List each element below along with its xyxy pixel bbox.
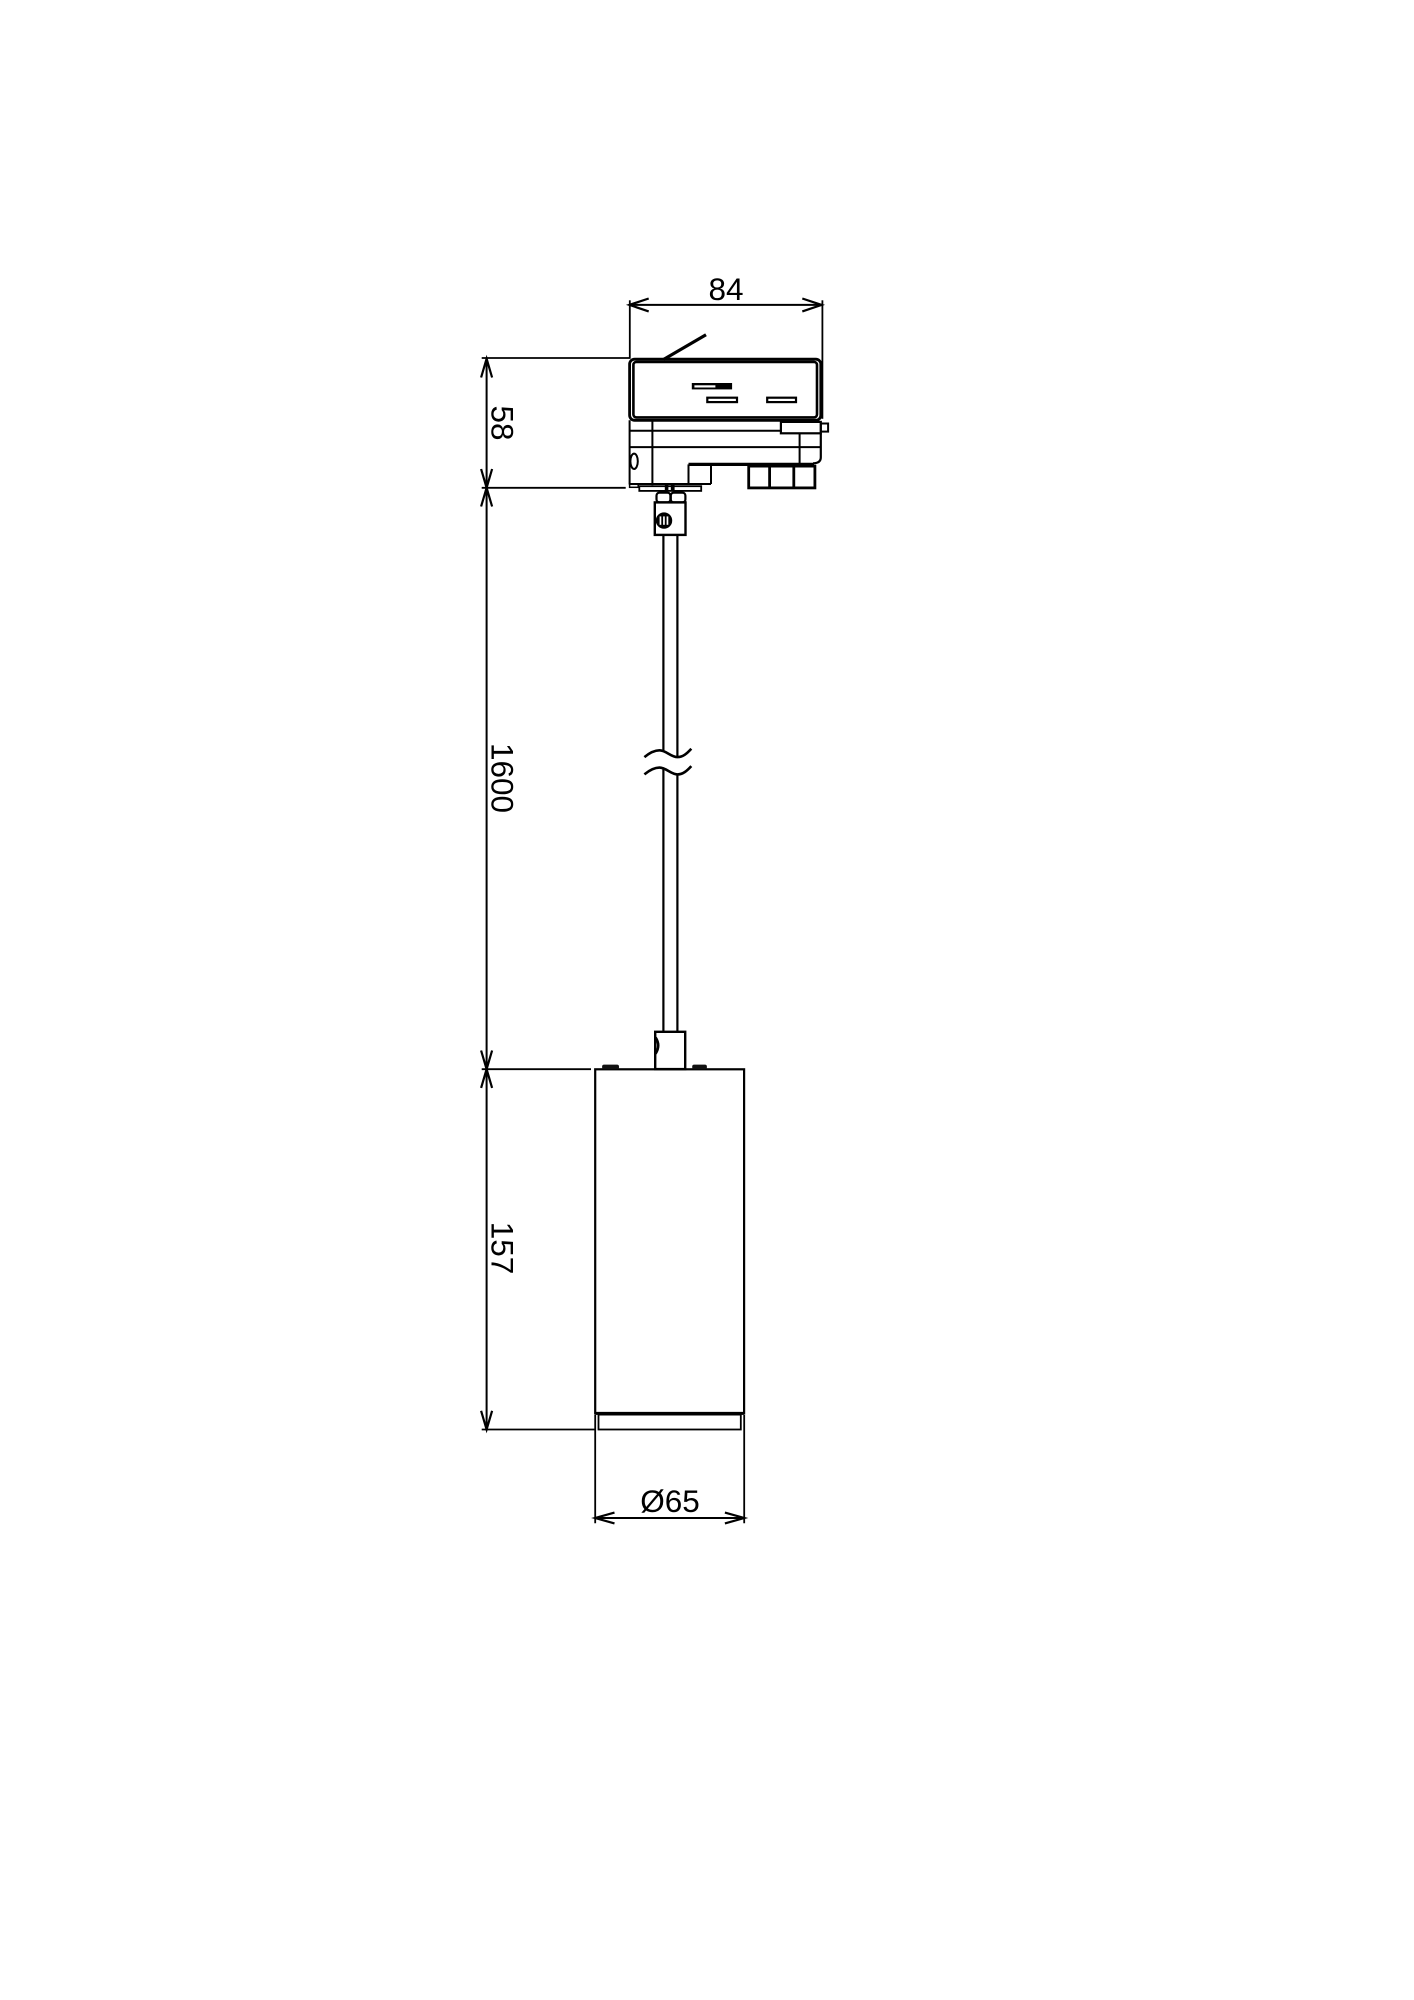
svg-text:58: 58 [485,405,521,440]
svg-text:84: 84 [708,271,743,307]
svg-text:157: 157 [485,1222,521,1275]
svg-text:1600: 1600 [485,743,521,813]
svg-text:Ø65: Ø65 [640,1483,700,1519]
